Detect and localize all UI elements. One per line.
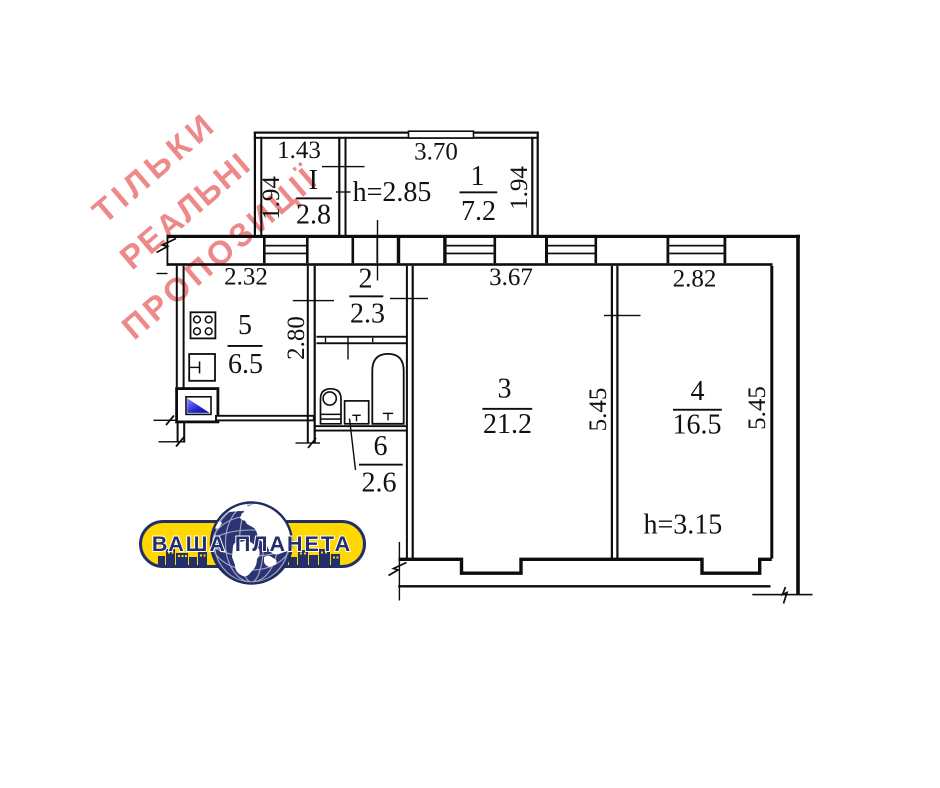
svg-text:1.43: 1.43 <box>277 137 321 164</box>
svg-text:3.70: 3.70 <box>414 139 458 166</box>
svg-text:5.45: 5.45 <box>585 388 612 432</box>
svg-text:7.2: 7.2 <box>461 196 496 227</box>
svg-text:2.32: 2.32 <box>224 264 268 291</box>
svg-text:2: 2 <box>359 264 373 295</box>
svg-text:2.3: 2.3 <box>350 299 385 330</box>
svg-text:2.80: 2.80 <box>283 316 310 360</box>
svg-text:6: 6 <box>374 431 388 462</box>
svg-text:1: 1 <box>471 161 485 192</box>
svg-text:2.6: 2.6 <box>362 468 397 499</box>
svg-text:2.8: 2.8 <box>296 199 331 230</box>
svg-text:5: 5 <box>238 310 252 341</box>
svg-text:16.5: 16.5 <box>673 410 722 441</box>
svg-text:3.67: 3.67 <box>489 264 533 291</box>
svg-text:3: 3 <box>498 374 512 405</box>
svg-text:1.94: 1.94 <box>506 166 533 210</box>
svg-text:ВАША ПЛАНЕТА: ВАША ПЛАНЕТА <box>152 532 352 556</box>
svg-text:4: 4 <box>691 376 705 407</box>
svg-text:6.5: 6.5 <box>228 349 263 380</box>
svg-text:1.94: 1.94 <box>258 176 285 220</box>
svg-text:2.82: 2.82 <box>673 266 717 293</box>
svg-text:h=3.15: h=3.15 <box>644 510 723 541</box>
svg-text:21.2: 21.2 <box>483 409 532 440</box>
svg-text:5.45: 5.45 <box>744 386 771 430</box>
svg-text:I: I <box>309 165 318 196</box>
svg-text:h=2.85: h=2.85 <box>353 177 432 208</box>
